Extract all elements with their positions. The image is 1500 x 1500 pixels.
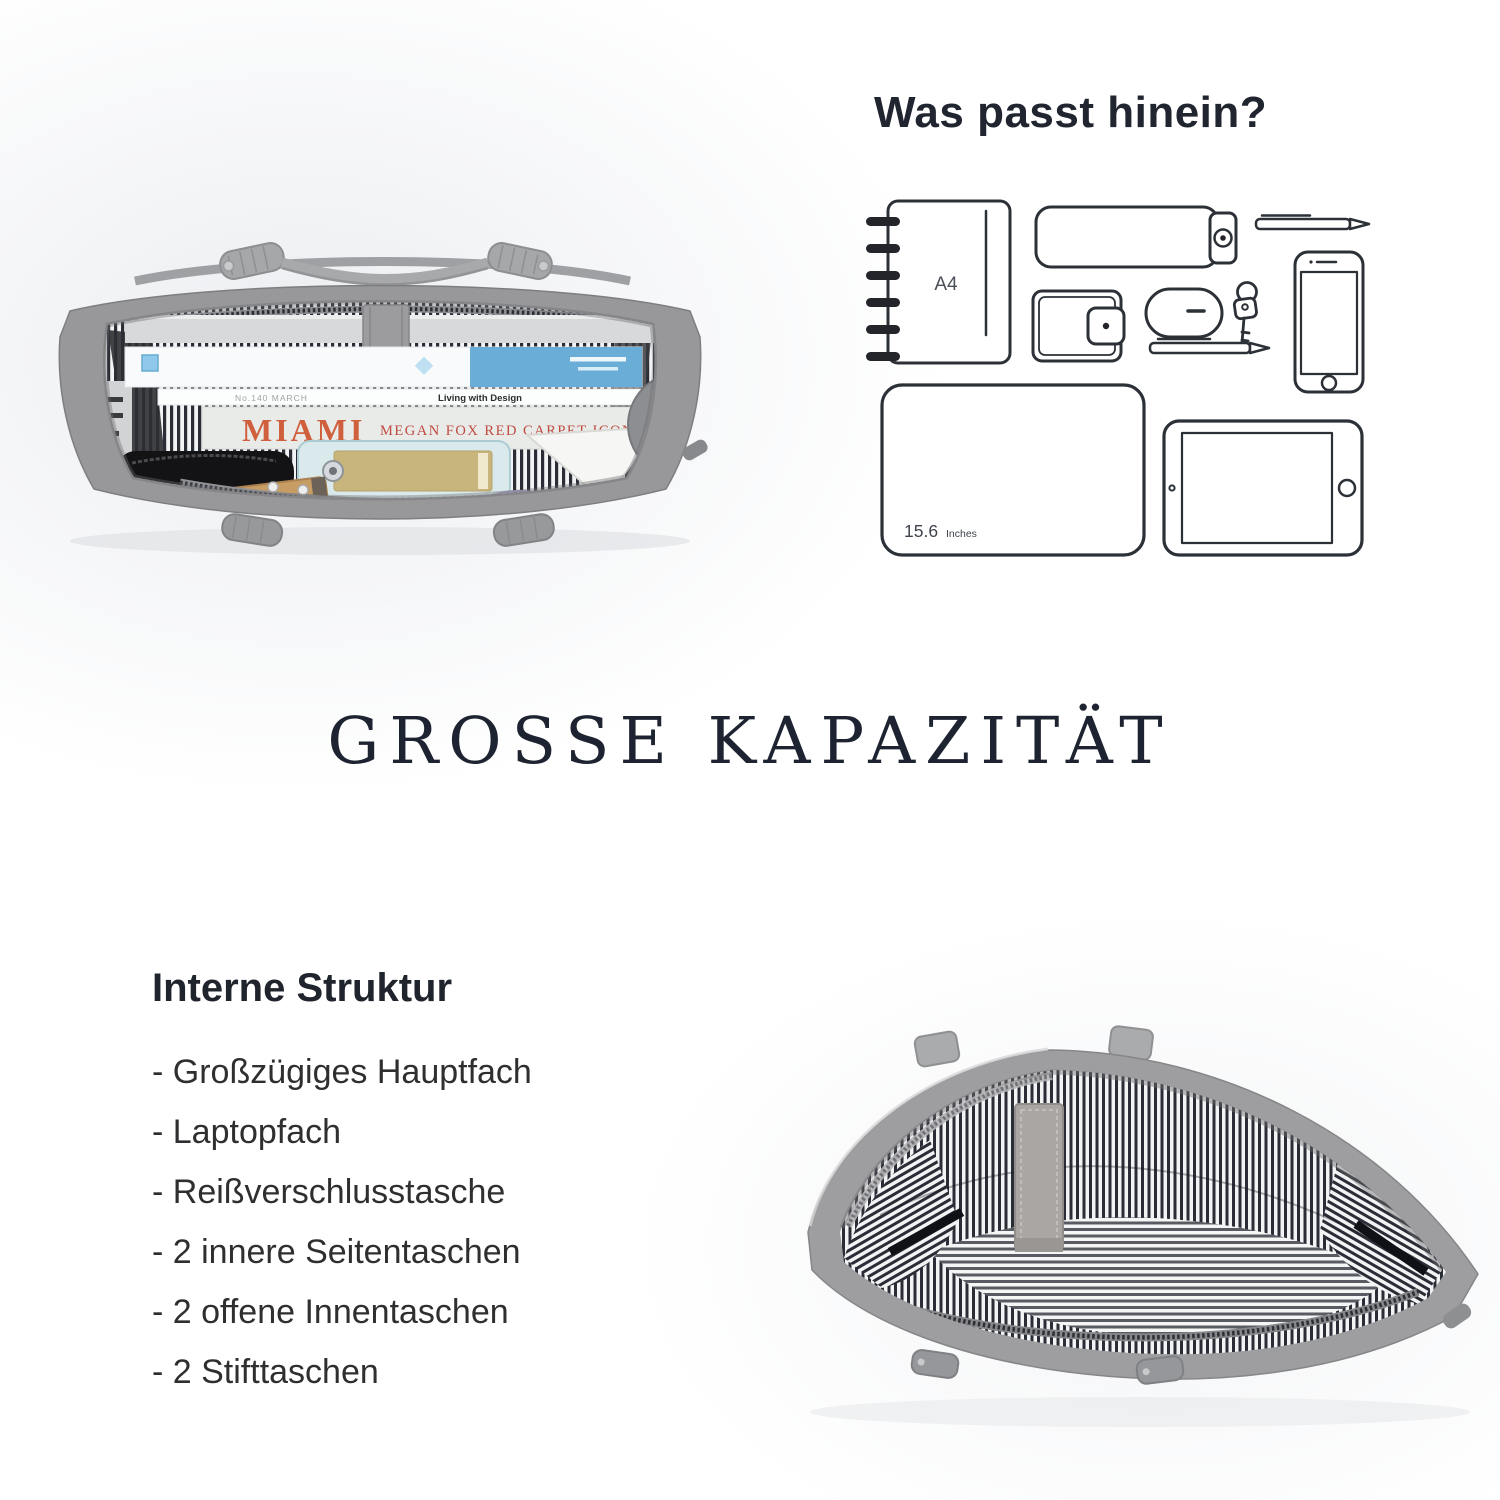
smartphone-drawing — [1295, 252, 1363, 392]
structure-item-3: - Reißverschlusstasche — [152, 1175, 712, 1209]
empty-bag-illustration — [790, 1020, 1490, 1460]
book-logo — [142, 355, 158, 371]
items-line-drawing: A4 — [858, 189, 1378, 574]
bag-shadow — [810, 1397, 1470, 1427]
book-text-line — [578, 367, 618, 371]
pen-drawing-2 — [1150, 339, 1269, 353]
bag-shadow — [70, 527, 690, 555]
structure-item-1: - Großzügiges Hauptfach — [152, 1055, 712, 1089]
keys-drawing — [1234, 282, 1257, 343]
internal-structure-list: - Großzügiges Hauptfach - Laptopfach - R… — [152, 1055, 712, 1389]
product-infographic: No.140 MARCH Living with Design MIAMI ME… — [0, 0, 1500, 1500]
what-fits-heading: Was passt hinein? — [858, 88, 1398, 139]
laptop-drawing: 15.6 Inches — [882, 385, 1144, 555]
wallet-drawing — [1033, 291, 1124, 361]
top-tab-left — [914, 1031, 961, 1068]
bag-handle-right — [486, 241, 554, 282]
zipper-pull — [268, 482, 278, 492]
internal-structure-heading: Interne Struktur — [152, 966, 712, 1011]
packed-bag-illustration: No.140 MARCH Living with Design MIAMI ME… — [30, 185, 730, 565]
laptop-unit-label: Inches — [946, 528, 977, 540]
empty-bag-photo — [790, 1020, 1490, 1460]
structure-item-6: - 2 Stifttaschen — [152, 1355, 712, 1389]
capacity-title: GROSSE KAPAZITÄT — [0, 704, 1500, 779]
tablet-drawing — [1164, 421, 1362, 555]
a4-label: A4 — [934, 274, 958, 295]
structure-item-4: - 2 innere Seitentaschen — [152, 1235, 712, 1269]
structure-item-2: - Laptopfach — [152, 1115, 712, 1149]
bottom-tab-right — [1136, 1355, 1185, 1384]
book-text-line — [570, 357, 626, 362]
pen-drawing — [1256, 215, 1369, 229]
gold-notebook — [334, 451, 492, 491]
what-fits-section: Was passt hinein? A4 — [858, 88, 1398, 574]
packed-bag-photo: No.140 MARCH Living with Design MIAMI ME… — [30, 185, 730, 565]
notebook-pages — [478, 453, 488, 489]
pencil-case-drawing — [1036, 207, 1236, 267]
a4-notebook-drawing: A4 — [866, 201, 1010, 363]
internal-structure-section: Interne Struktur - Großzügiges Hauptfach… — [152, 966, 712, 1415]
structure-item-5: - 2 offene Innentaschen — [152, 1295, 712, 1329]
mouse-drawing — [1146, 289, 1222, 337]
magazine-title: Living with Design — [438, 393, 522, 404]
binder-ring-center — [329, 467, 337, 475]
magazine-issue: No.140 MARCH — [235, 393, 308, 403]
laptop-size-label: 15.6 — [904, 521, 938, 541]
magazine-spine — [158, 389, 648, 405]
bottom-tab-left — [911, 1349, 960, 1379]
zipper-pull — [298, 485, 308, 495]
velcro-strap — [1015, 1104, 1063, 1252]
bag-handle-left — [218, 241, 286, 282]
